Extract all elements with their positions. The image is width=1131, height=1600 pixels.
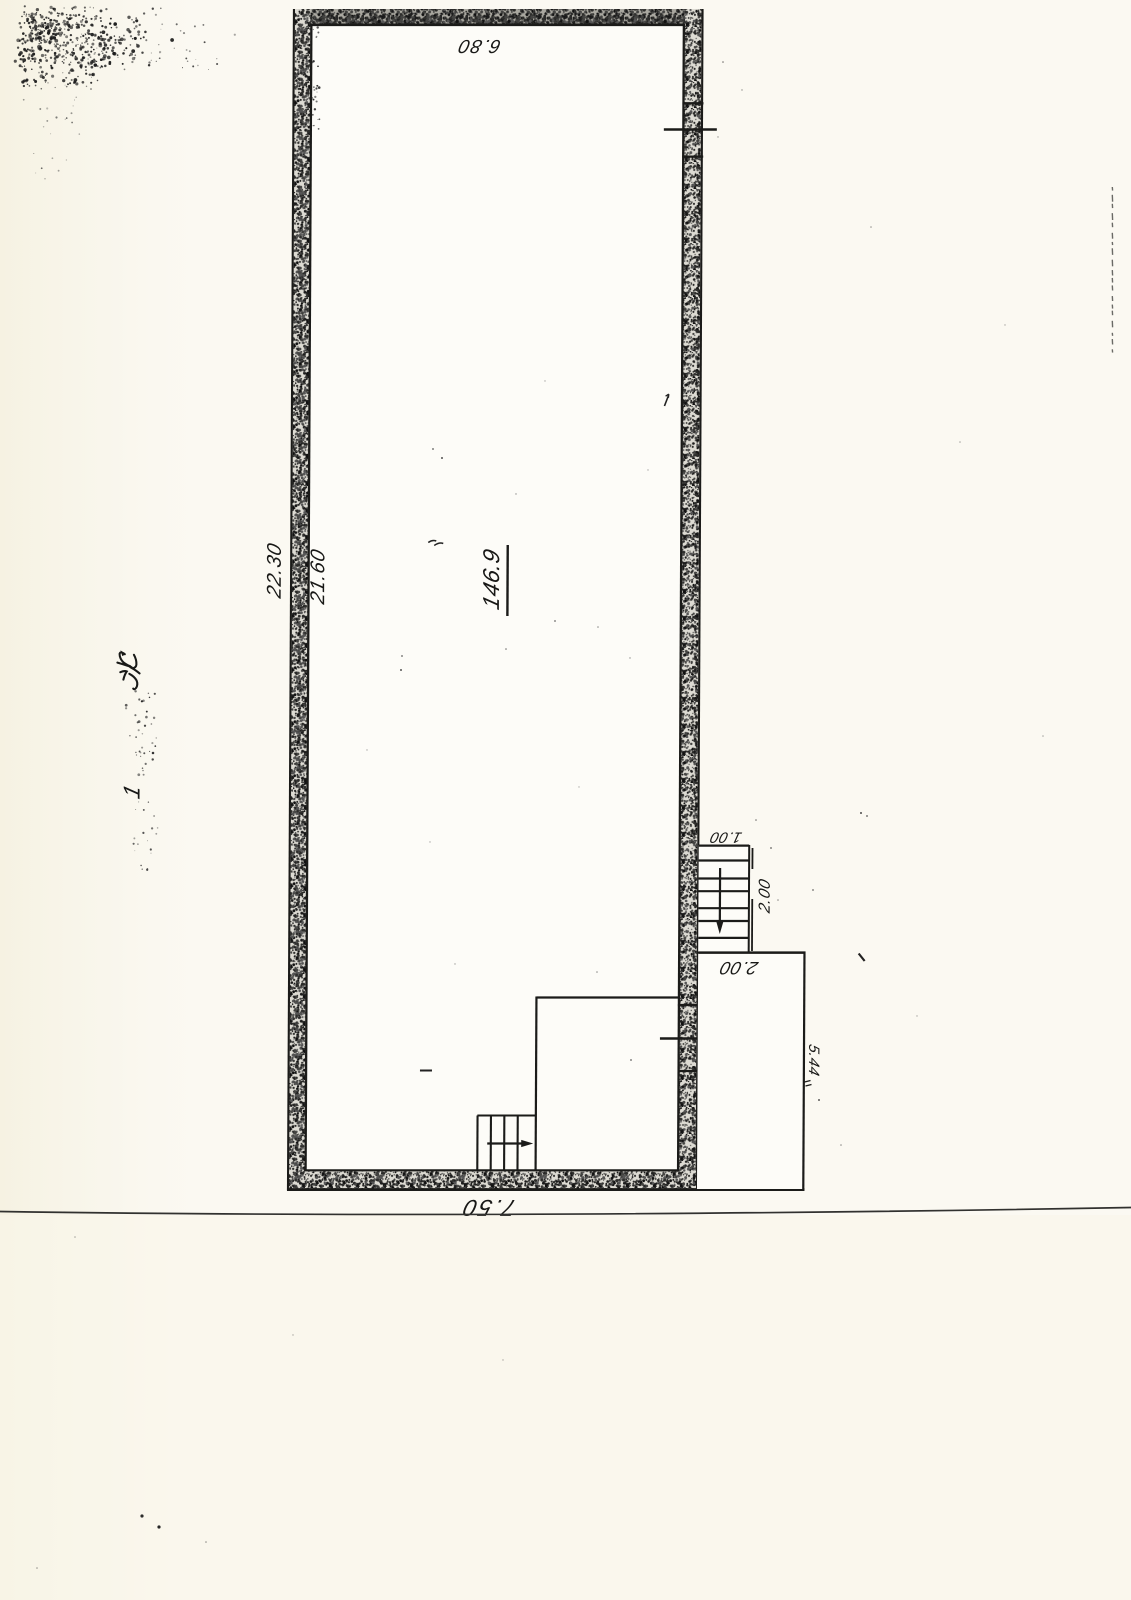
- svg-text:2.00: 2.00: [756, 877, 774, 916]
- svg-text:22.30: 22.30: [264, 541, 286, 601]
- svg-text:1.00: 1.00: [708, 829, 743, 846]
- svg-text:5.44: 5.44: [805, 1042, 822, 1077]
- svg-text:2.00: 2.00: [717, 958, 761, 979]
- svg-text:146.9: 146.9: [478, 546, 504, 612]
- svg-text:7.50: 7.50: [459, 1195, 519, 1221]
- svg-text:21.60: 21.60: [307, 547, 329, 607]
- svg-text:6.80: 6.80: [455, 35, 503, 56]
